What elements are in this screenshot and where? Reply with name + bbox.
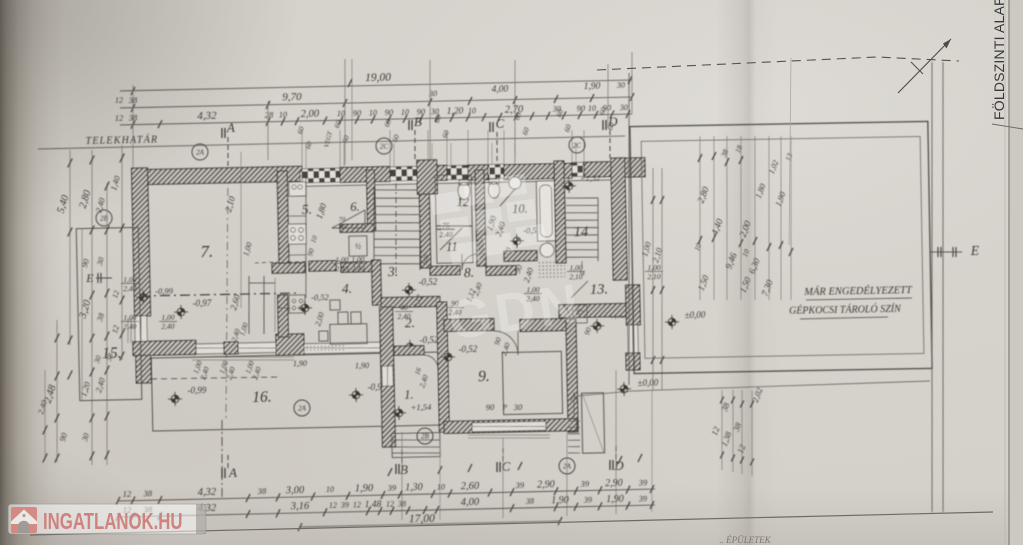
svg-text:39: 39 [387,483,397,493]
svg-text:2C: 2C [380,142,389,150]
svg-text:6.: 6. [350,200,360,214]
svg-text:10: 10 [326,485,334,494]
svg-text:4,32: 4,32 [197,110,217,122]
svg-text:1,90: 1,90 [355,361,369,370]
svg-text:½: ½ [355,242,361,251]
svg-text:2,40: 2,40 [335,264,349,273]
svg-text:10: 10 [437,483,445,492]
svg-text:2,90: 2,90 [605,478,623,489]
svg-text:39: 39 [580,478,590,488]
svg-text:2C: 2C [573,141,582,149]
svg-text:C: C [495,116,504,131]
svg-text:TELEKHATÁR: TELEKHATÁR [85,133,158,147]
svg-text:2,40: 2,40 [161,322,175,331]
svg-text:30: 30 [619,103,628,112]
svg-text:±0,00: ±0,00 [637,378,658,388]
svg-text:1,00: 1,00 [335,255,349,264]
svg-text:1,90: 1,90 [584,82,601,92]
svg-text:±0,00: ±0,00 [685,310,706,320]
svg-text:39: 39 [638,477,648,487]
svg-text:10: 10 [369,108,377,117]
svg-text:12: 12 [115,113,124,123]
svg-text:10: 10 [339,224,346,231]
svg-text:1,00: 1,00 [351,255,365,264]
svg-text:38: 38 [397,500,406,509]
svg-text:38: 38 [257,486,267,496]
svg-text:A: A [228,465,237,480]
svg-text:12: 12 [123,489,132,499]
svg-text:1,00: 1,00 [161,313,175,322]
svg-text:39: 39 [515,480,525,490]
svg-text:P: P [502,403,508,412]
svg-text:30: 30 [513,402,523,412]
svg-text:1.: 1. [404,388,414,402]
svg-text:9,70: 9,70 [282,91,302,103]
svg-text:2A: 2A [298,404,307,412]
svg-text:4,00: 4,00 [492,85,509,95]
svg-text:+1,52: +1,52 [579,173,601,183]
svg-text:30: 30 [616,81,625,90]
svg-text:2,90: 2,90 [537,479,555,490]
svg-text:A: A [226,120,235,135]
svg-text:4,00: 4,00 [461,497,480,508]
svg-text:30: 30 [428,89,437,98]
svg-text:2,40: 2,40 [123,322,137,331]
svg-text:B: B [400,462,408,477]
svg-text:38: 38 [525,497,534,506]
svg-text:9.: 9. [478,368,490,385]
svg-text:8.: 8. [464,265,474,280]
svg-text:10: 10 [588,104,596,113]
svg-text:-0,52: -0,52 [418,277,437,287]
svg-text:1,30: 1,30 [405,482,423,493]
svg-text:90: 90 [577,103,586,113]
svg-text:E: E [85,271,94,285]
svg-text:70: 70 [339,216,346,223]
svg-text:-0,97: -0,97 [192,298,211,308]
svg-text:14: 14 [574,224,589,240]
svg-text:10: 10 [279,110,287,119]
svg-text:D: D [607,114,618,129]
svg-text:2,40: 2,40 [351,264,365,273]
svg-text:-0,99: -0,99 [187,385,206,395]
svg-text:12: 12 [115,96,123,105]
svg-text:2B: 2B [421,432,430,440]
svg-text:1,90: 1,90 [293,359,307,368]
svg-text:INGATLANOK.HU: INGATLANOK.HU [43,510,183,535]
svg-text:1,48: 1,48 [365,500,382,510]
svg-text:E: E [970,243,980,258]
svg-text:7.: 7. [200,242,213,261]
svg-text:39: 39 [583,495,592,504]
svg-text:3,00: 3,00 [285,485,305,496]
svg-text:10: 10 [337,109,345,118]
svg-text:90: 90 [486,402,495,412]
svg-text:16.: 16. [252,389,272,406]
svg-text:+1,54: +1,54 [411,402,433,412]
svg-text:19,00: 19,00 [365,72,391,85]
svg-text:1,00: 1,00 [123,313,137,322]
svg-text:FÖLDSZINTI ALAPRAJ: FÖLDSZINTI ALAPRAJ [990,0,1007,120]
svg-text:MÁR ENGEDÉLYEZETT: MÁR ENGEDÉLYEZETT [803,284,913,298]
svg-text:10: 10 [401,108,409,117]
svg-text:-0,52: -0,52 [311,292,330,302]
svg-text:2,00: 2,00 [301,109,320,120]
svg-text:.. ÉPÜLETEK: .. ÉPÜLETEK [719,535,771,545]
svg-text:39: 39 [638,494,647,503]
svg-text:12: 12 [329,501,337,510]
svg-text:28: 28 [265,110,274,120]
svg-text:2,60: 2,60 [461,481,480,492]
svg-text:12: 12 [353,500,361,509]
svg-text:15.: 15. [102,345,122,362]
svg-text:4,32: 4,32 [198,487,217,498]
svg-text:3,16: 3,16 [290,501,310,512]
svg-text:90: 90 [385,107,394,117]
svg-text:5.: 5. [302,202,312,217]
svg-text:10: 10 [468,106,476,115]
svg-text:D: D [613,458,624,473]
svg-text:39: 39 [340,501,349,510]
svg-text:2,40: 2,40 [397,312,411,321]
svg-text:90: 90 [353,108,362,118]
svg-text:3.: 3. [387,264,398,279]
svg-text:17,00: 17,00 [409,513,435,526]
svg-text:2A: 2A [196,148,205,156]
svg-text:-0,99: -0,99 [155,286,174,296]
svg-text:1,90: 1,90 [606,494,624,505]
svg-text:38: 38 [143,488,153,498]
svg-text:13.: 13. [590,282,608,298]
svg-text:1,90: 1,90 [551,495,569,506]
svg-text:1,20: 1,20 [447,107,464,117]
svg-text:40: 40 [400,303,408,312]
svg-text:12: 12 [386,500,394,509]
svg-text:2,10: 2,10 [647,272,661,281]
svg-text:1,00: 1,00 [123,275,137,284]
svg-text:GÉPKOCSI TÁROLÓ SZÍN: GÉPKOCSI TÁROLÓ SZÍN [789,303,902,317]
svg-text:1,90: 1,90 [355,483,374,494]
svg-text:2,40: 2,40 [123,284,137,293]
svg-text:4.: 4. [342,281,352,296]
svg-text:B: B [414,114,422,129]
svg-text:-0,52: -0,52 [419,335,438,345]
